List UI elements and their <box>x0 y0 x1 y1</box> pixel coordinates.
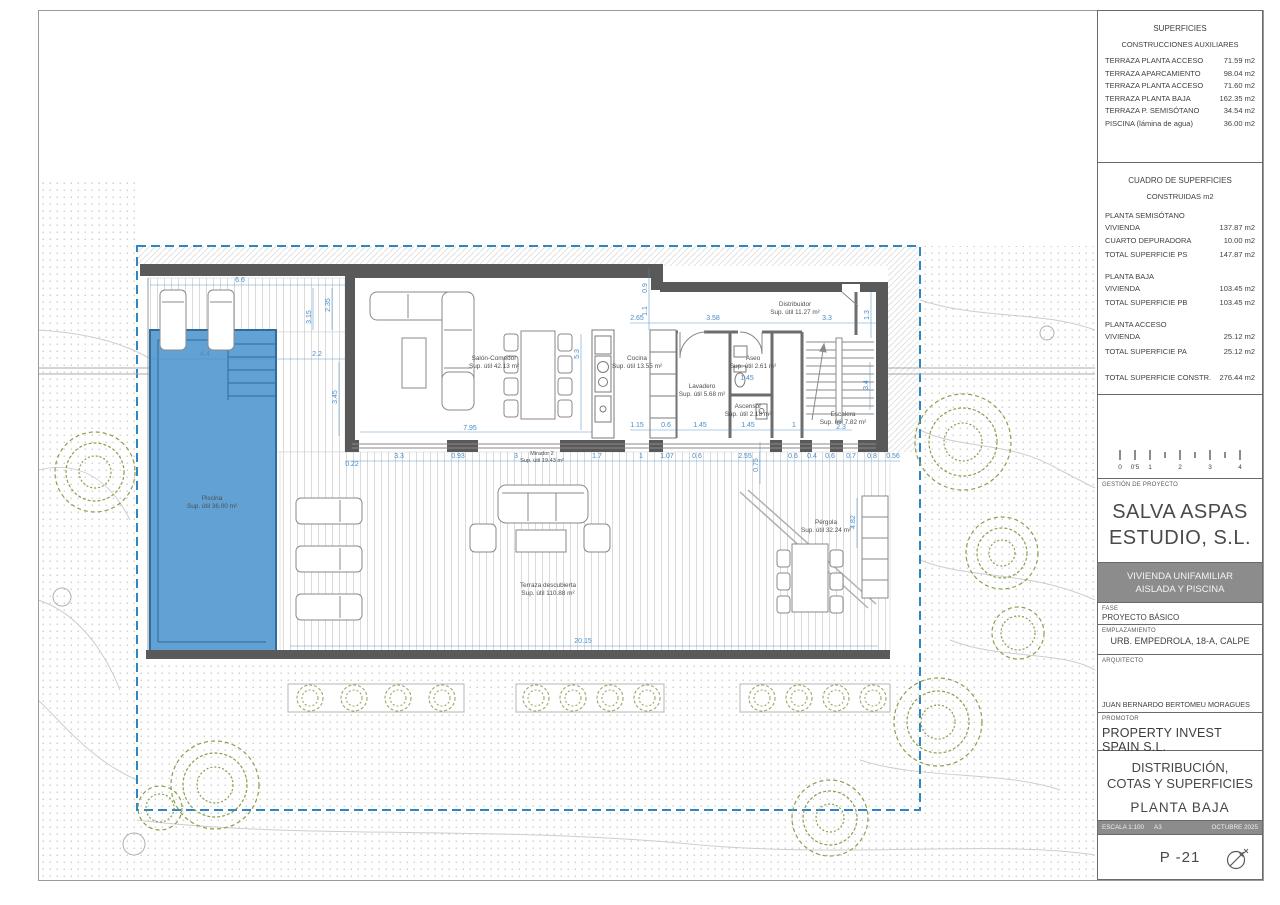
dim-label: 3.3 <box>822 315 832 322</box>
dim-label: 0.6 <box>692 453 702 460</box>
sheet-title-line1: DISTRIBUCIÓN, <box>1098 760 1262 776</box>
sheet-number: P -21 <box>1160 849 1201 866</box>
graphic-scale-bar: 0 0'5 1 2 3 4 <box>1114 448 1246 472</box>
row-value: 36.00 m2 <box>1224 118 1255 131</box>
dim-label: 3 <box>514 453 518 460</box>
sheet-number-section: P -21 <box>1098 835 1262 879</box>
sheet-title-line2: COTAS Y SUPERFICIES <box>1098 776 1262 792</box>
room-label-aseo: Aseo <box>746 355 761 362</box>
dim-label: 7.95 <box>463 425 477 432</box>
dim-label: 1 <box>792 422 796 429</box>
group-name: PLANTA ACCESO <box>1098 320 1262 329</box>
table-row-grand-total: TOTAL SUPERFICIE CONSTR.276.44 m2 <box>1098 372 1262 385</box>
row-value: 98.04 m2 <box>1224 68 1255 81</box>
dim-label: 3.4 <box>863 380 870 390</box>
row-value: 276.44 m2 <box>1220 372 1255 385</box>
room-area-salon: Sup. útil 42.13 m² <box>469 363 519 370</box>
dim-label: 3.15 <box>306 310 313 324</box>
arquitecto-value: JUAN BERNARDO BERTOMEU MORAGUES <box>1098 700 1262 712</box>
coffee-table <box>402 338 426 388</box>
room-area-distribuidor: Sup. útil 11.27 m² <box>770 309 820 316</box>
sheet-title-section: DISTRIBUCIÓN, COTAS Y SUPERFICIES PLANTA… <box>1098 751 1262 821</box>
scale-tick-label: 2 <box>1178 464 1182 471</box>
north-arrow-icon <box>1224 845 1250 871</box>
scale-bar-section: 0 0'5 1 2 3 4 <box>1098 395 1262 479</box>
table-row: TERRAZA PLANTA ACCESO71.60 m2 <box>1098 80 1262 93</box>
dim-label: 1.45 <box>741 422 755 429</box>
table-row: TERRAZA PLANTA BAJA162.35 m2 <box>1098 93 1262 106</box>
project-band-line1: VIVIENDA UNIFAMILIAR <box>1098 570 1262 583</box>
arquitecto-label: ARQUITECTO <box>1098 655 1262 664</box>
room-area-escalera: Sup. útil 7.82 m² <box>820 419 867 426</box>
dim-label: 6.6 <box>235 277 245 284</box>
row-value: 103.45 m2 <box>1220 283 1255 296</box>
row-value: 10.00 m2 <box>1224 235 1255 248</box>
fase-section: FASE PROYECTO BÁSICO <box>1098 603 1262 625</box>
dim-label: 1 <box>639 453 643 460</box>
fase-value: PROYECTO BÁSICO <box>1098 612 1262 625</box>
scale-tick-label: 4 <box>1238 464 1242 471</box>
row-label: TOTAL SUPERFICIE PS <box>1105 249 1187 262</box>
dim-label: 0.4 <box>807 453 817 460</box>
room-label-mirador: Mirador 2 <box>530 451 554 457</box>
dim-label: 2.35 <box>325 298 332 312</box>
pergola-dining <box>777 544 843 613</box>
row-value: 34.54 m2 <box>1224 105 1255 118</box>
row-value: 162.35 m2 <box>1220 93 1255 106</box>
date-text: OCTUBRE 2025 <box>1211 824 1258 831</box>
table-row-total: TOTAL SUPERFICIE PA25.12 m2 <box>1098 346 1262 359</box>
floor-plan-canvas: 6.6 3.15 2.35 4.4 2.2 3.45 0.22 3.3 0.93… <box>0 0 1280 905</box>
table-row: CUARTO DEPURADORA10.00 m2 <box>1098 235 1262 248</box>
drawing-sheet: 6.6 3.15 2.35 4.4 2.2 3.45 0.22 3.3 0.93… <box>0 0 1280 905</box>
room-label-cocina: Cocina <box>627 355 647 362</box>
dim-label: 1.45 <box>740 375 754 382</box>
dim-label: 4.82 <box>850 515 857 529</box>
row-label: TERRAZA PLANTA ACCESO <box>1105 55 1203 68</box>
row-label: PISCINA (lámina de agua) <box>1105 118 1193 131</box>
dim-label: 1.7 <box>592 453 602 460</box>
dim-label: 3.45 <box>332 390 339 404</box>
row-label: TERRAZA PLANTA ACCESO <box>1105 80 1203 93</box>
room-area-mirador: Sup. útil 19.43 m² <box>520 458 564 464</box>
studio-section: GESTIÓN DE PROYECTO SALVA ASPAS ESTUDIO,… <box>1098 479 1262 563</box>
group-name: PLANTA BAJA <box>1098 272 1262 281</box>
row-label: TERRAZA PLANTA BAJA <box>1105 93 1191 106</box>
paper-format: A3 <box>1154 824 1200 831</box>
dim-label: 0.7 <box>846 453 856 460</box>
row-label: TERRAZA P. SEMISÓTANO <box>1105 105 1199 118</box>
room-label-salon: Salón-Comedor <box>472 355 518 362</box>
row-label: VIVIENDA <box>1105 222 1140 235</box>
room-area-aseo: Sup. útil 2.61 m² <box>730 363 777 370</box>
room-area-terraza: Sup. útil 110.88 m² <box>521 590 574 597</box>
row-label: CUARTO DEPURADORA <box>1105 235 1191 248</box>
row-value: 25.12 m2 <box>1224 331 1255 344</box>
planter-bench <box>862 496 888 598</box>
room-area-piscina: Sup. útil 36.00 m² <box>187 503 237 510</box>
bush-planters <box>288 684 890 712</box>
dim-label: 3.58 <box>706 315 720 322</box>
title-block: SUPERFICIES CONSTRUCCIONES AUXILIARES TE… <box>1097 10 1263 880</box>
room-label-terraza: Terraza descubierta <box>520 582 577 589</box>
row-label: TOTAL SUPERFICIE CONSTR. <box>1105 372 1211 385</box>
dim-label: 4.4 <box>200 351 210 358</box>
row-value: 147.87 m2 <box>1220 249 1255 262</box>
row-value: 103.45 m2 <box>1220 297 1255 310</box>
row-label: VIVIENDA <box>1105 331 1140 344</box>
dim-label: 0.56 <box>886 453 900 460</box>
scale-tick-label: 0'5 <box>1131 464 1140 471</box>
row-label: TERRAZA APARCAMIENTO <box>1105 68 1201 81</box>
arquitecto-section: ARQUITECTO JUAN BERNARDO BERTOMEU MORAGU… <box>1098 655 1262 713</box>
table-row: PISCINA (lámina de agua)36.00 m2 <box>1098 118 1262 131</box>
dim-label: 1.45 <box>693 422 707 429</box>
deck-edge-wall <box>146 650 890 659</box>
room-label-ascensor: Ascensor <box>735 403 763 410</box>
row-label: VIVIENDA <box>1105 283 1140 296</box>
studio-name: SALVA ASPAS ESTUDIO, S.L. <box>1098 488 1262 562</box>
room-area-ascensor: Sup. útil 2.18 m² <box>725 411 772 418</box>
room-area-lavadero: Sup. útil 5.68 m² <box>679 391 726 398</box>
room-label-distribuidor: Distribuidor <box>779 301 812 308</box>
table-row-total: TOTAL SUPERFICIE PB103.45 m2 <box>1098 297 1262 310</box>
dim-label: 0.6 <box>825 453 835 460</box>
row-label: TOTAL SUPERFICIE PB <box>1105 297 1187 310</box>
dim-label: 0.8 <box>867 453 877 460</box>
cuadro-subtitle: CONSTRUIDAS m2 <box>1098 192 1262 201</box>
row-value: 25.12 m2 <box>1224 346 1255 359</box>
gestion-label: GESTIÓN DE PROYECTO <box>1098 479 1262 488</box>
superficies-subtitle: CONSTRUCCIONES AUXILIARES <box>1098 40 1262 49</box>
emplazamiento-label: EMPLAZAMIENTO <box>1098 625 1262 634</box>
superficies-title: SUPERFICIES <box>1098 24 1262 33</box>
dim-label: 2.2 <box>312 351 322 358</box>
dim-label: 1.07 <box>660 453 674 460</box>
promotor-section: PROMOTOR PROPERTY INVEST SPAIN S.L. <box>1098 713 1262 751</box>
project-band-line2: AISLADA Y PISCINA <box>1098 583 1262 596</box>
dim-label: 0.6 <box>788 453 798 460</box>
dim-label: 0.22 <box>345 461 359 468</box>
room-label-pergola: Pérgola <box>815 519 837 526</box>
superficies-table: SUPERFICIES CONSTRUCCIONES AUXILIARES TE… <box>1098 11 1262 163</box>
room-label-piscina: Piscina <box>202 495 223 502</box>
table-row-total: TOTAL SUPERFICIE PS147.87 m2 <box>1098 249 1262 262</box>
table-row: VIVIENDA25.12 m2 <box>1098 331 1262 344</box>
dim-label: 20.15 <box>574 638 592 645</box>
room-label-lavadero: Lavadero <box>689 383 716 390</box>
table-row: TERRAZA APARCAMIENTO98.04 m2 <box>1098 68 1262 81</box>
dim-label: 3.3 <box>394 453 404 460</box>
row-value: 71.60 m2 <box>1224 80 1255 93</box>
dim-label: 0.93 <box>451 453 465 460</box>
row-value: 71.59 m2 <box>1224 55 1255 68</box>
scale-tick-label: 1 <box>1148 464 1152 471</box>
dim-label: 0.9 <box>642 283 649 293</box>
dim-label: 2.55 <box>738 453 752 460</box>
project-band: VIVIENDA UNIFAMILIAR AISLADA Y PISCINA <box>1098 563 1262 603</box>
cuadro-title: CUADRO DE SUPERFICIES <box>1098 176 1262 185</box>
table-row: TERRAZA PLANTA ACCESO71.59 m2 <box>1098 55 1262 68</box>
room-area-cocina: Sup. útil 13.55 m² <box>612 363 662 370</box>
scale-text: ESCALA 1:100 <box>1102 824 1154 831</box>
emplazamiento-value: URB. EMPEDROLA, 18-A, CALPE <box>1098 634 1262 650</box>
dim-label: 1.15 <box>630 422 644 429</box>
sheet-title-line3: PLANTA BAJA <box>1098 800 1262 815</box>
room-area-pergola: Sup. útil 32.24 m² <box>801 527 851 534</box>
table-row: TERRAZA P. SEMISÓTANO34.54 m2 <box>1098 105 1262 118</box>
group-name: PLANTA SEMISÓTANO <box>1098 211 1262 220</box>
scale-tick-label: 0 <box>1118 464 1122 471</box>
room-label-escalera: Escalera <box>831 411 856 418</box>
table-row: VIVIENDA137.87 m2 <box>1098 222 1262 235</box>
table-row: VIVIENDA103.45 m2 <box>1098 283 1262 296</box>
cuadro-superficies-table: CUADRO DE SUPERFICIES CONSTRUIDAS m2 PLA… <box>1098 163 1262 395</box>
emplazamiento-section: EMPLAZAMIENTO URB. EMPEDROLA, 18-A, CALP… <box>1098 625 1262 655</box>
dim-label: 0.6 <box>661 422 671 429</box>
scale-tick-label: 3 <box>1208 464 1212 471</box>
sun-loungers-terrace <box>296 498 362 620</box>
row-value: 137.87 m2 <box>1220 222 1255 235</box>
studio-name-line1: SALVA ASPAS <box>1098 499 1262 525</box>
dim-label: 1.3 <box>864 310 871 320</box>
dim-label: 5.3 <box>574 349 581 359</box>
meta-bar: ESCALA 1:100 A3 OCTUBRE 2025 <box>1098 821 1262 835</box>
dim-label: 1.1 <box>642 306 649 316</box>
dim-label: 0.75 <box>753 458 760 472</box>
studio-name-line2: ESTUDIO, S.L. <box>1098 525 1262 551</box>
fase-label: FASE <box>1098 603 1262 612</box>
promotor-label: PROMOTOR <box>1098 713 1262 722</box>
row-label: TOTAL SUPERFICIE PA <box>1105 346 1187 359</box>
